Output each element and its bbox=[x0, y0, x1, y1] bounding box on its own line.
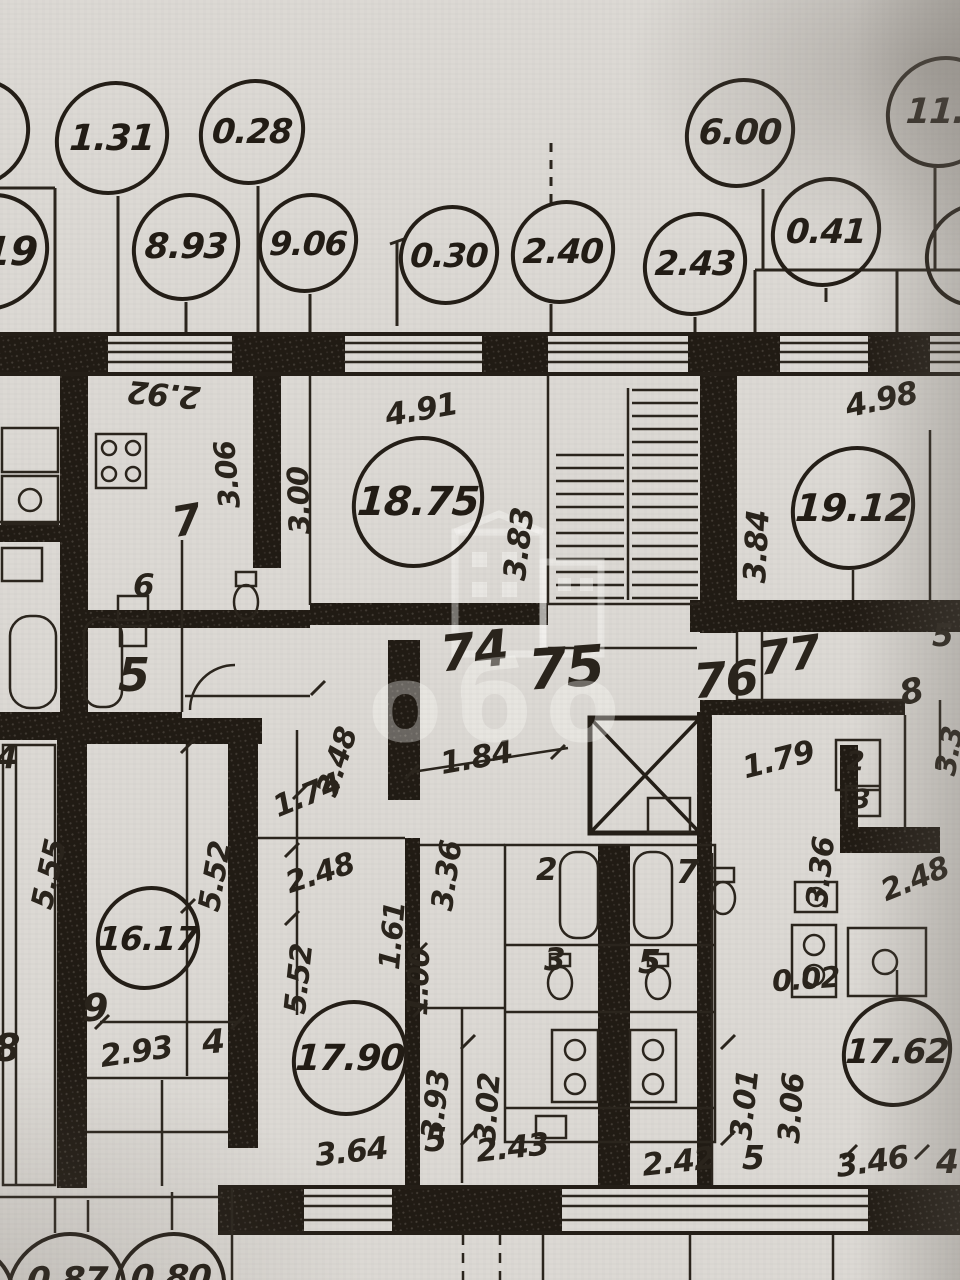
dim-3-01: 3.01 bbox=[724, 1068, 766, 1141]
staircase bbox=[548, 376, 700, 604]
label-5-right-edge: 5 bbox=[932, 618, 953, 654]
dim-3-06-right: 3.06 bbox=[772, 1072, 812, 1144]
dim-5-right: 5 bbox=[742, 1138, 764, 1177]
exterior-wall-bottom bbox=[218, 1185, 960, 1235]
label-7-bath: 7 bbox=[676, 852, 698, 891]
label-8-edge: 8 bbox=[0, 1026, 19, 1070]
label-6-left: 6 bbox=[133, 568, 154, 604]
dim-3-64: 3.64 bbox=[313, 1130, 389, 1173]
dim-3-36-right: 3.36 bbox=[800, 835, 842, 908]
label-5-left: 5 bbox=[118, 648, 149, 702]
label-9-edge: 9 bbox=[82, 986, 107, 1030]
dim-1-00: 1.00 bbox=[400, 947, 436, 1016]
watermark-text: обо bbox=[368, 642, 698, 767]
label-4-edge: 4 bbox=[0, 740, 17, 776]
dim-3-06-left: 3.06 bbox=[207, 440, 247, 510]
dim-5-52-mid: 5.52 bbox=[278, 942, 320, 1015]
dim-2-92: 2.92 bbox=[127, 373, 202, 415]
dim-3-00: 3.00 bbox=[281, 466, 317, 535]
label-2-boxed: 2 bbox=[846, 746, 864, 777]
dim-2-42: 2.42 bbox=[640, 1140, 716, 1183]
room-number-77: 77 bbox=[755, 624, 824, 686]
room-number-76: 76 bbox=[691, 650, 760, 710]
dim-2-43-bottom: 2.43 bbox=[474, 1126, 550, 1169]
label-2-bath: 2 bbox=[536, 852, 557, 888]
dim-4-right-edge: 4 bbox=[936, 1142, 958, 1181]
dim-4-left: 4 bbox=[200, 1021, 225, 1062]
dim-5-center: 5 bbox=[424, 1120, 446, 1159]
exterior-wall-top bbox=[0, 332, 960, 376]
dim-0-02: 0.02 bbox=[771, 960, 841, 999]
label-3-boxed: 3 bbox=[852, 784, 870, 815]
label-3-wc: 3 bbox=[544, 942, 565, 978]
floor-plan-photo: 1.31 0.28 6.00 11. 19 8.93 9.06 0.30 2.4… bbox=[0, 0, 960, 1280]
dim-3-84: 3.84 bbox=[737, 510, 777, 584]
label-5-wc: 5 bbox=[638, 942, 660, 981]
